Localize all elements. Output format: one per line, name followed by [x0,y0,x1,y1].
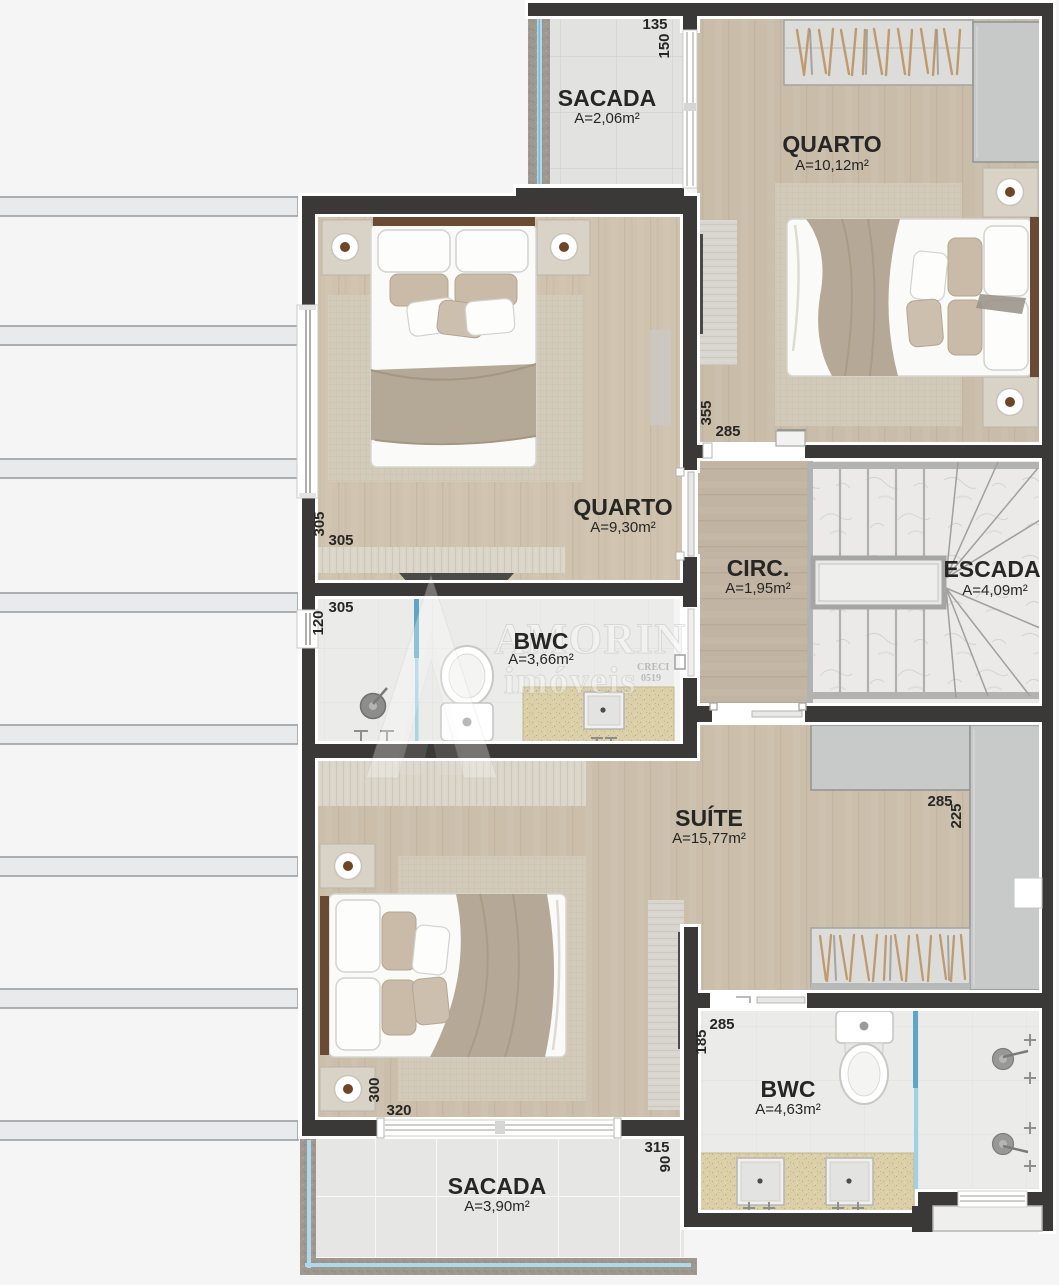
svg-text:QUARTO: QUARTO [573,494,672,520]
svg-text:355: 355 [698,400,715,425]
svg-text:285: 285 [715,423,740,440]
svg-text:305: 305 [328,532,353,549]
svg-text:SACADA: SACADA [448,1173,546,1199]
svg-text:SACADA: SACADA [558,85,656,111]
svg-text:CIRC.: CIRC. [727,555,790,581]
svg-text:300: 300 [366,1077,383,1102]
svg-text:CRECI: CRECI [637,662,669,673]
svg-text:315: 315 [644,1139,669,1156]
svg-text:305: 305 [311,511,328,536]
svg-text:A=3,66m²: A=3,66m² [508,651,573,668]
svg-text:0519: 0519 [641,673,661,684]
svg-text:ESCADA: ESCADA [943,556,1040,582]
svg-text:285: 285 [709,1016,734,1033]
svg-text:A=10,12m²: A=10,12m² [795,157,869,174]
svg-text:225: 225 [948,803,965,828]
svg-text:120: 120 [310,610,327,635]
svg-text:135: 135 [642,16,667,33]
svg-text:185: 185 [693,1029,710,1054]
svg-text:A=15,77m²: A=15,77m² [672,830,746,847]
svg-text:90: 90 [657,1156,674,1173]
svg-text:BWC: BWC [761,1076,816,1102]
svg-text:305: 305 [328,599,353,616]
svg-text:QUARTO: QUARTO [782,131,881,157]
svg-text:A=9,30m²: A=9,30m² [590,519,655,536]
svg-text:A=1,95m²: A=1,95m² [725,580,790,597]
svg-text:A=4,63m²: A=4,63m² [755,1101,820,1118]
svg-text:150: 150 [656,33,673,58]
svg-text:A=3,90m²: A=3,90m² [464,1198,529,1215]
svg-text:SUÍTE: SUÍTE [675,804,743,831]
svg-text:A=4,09m²: A=4,09m² [962,582,1027,599]
svg-text:320: 320 [386,1102,411,1119]
svg-text:A=2,06m²: A=2,06m² [574,110,639,127]
